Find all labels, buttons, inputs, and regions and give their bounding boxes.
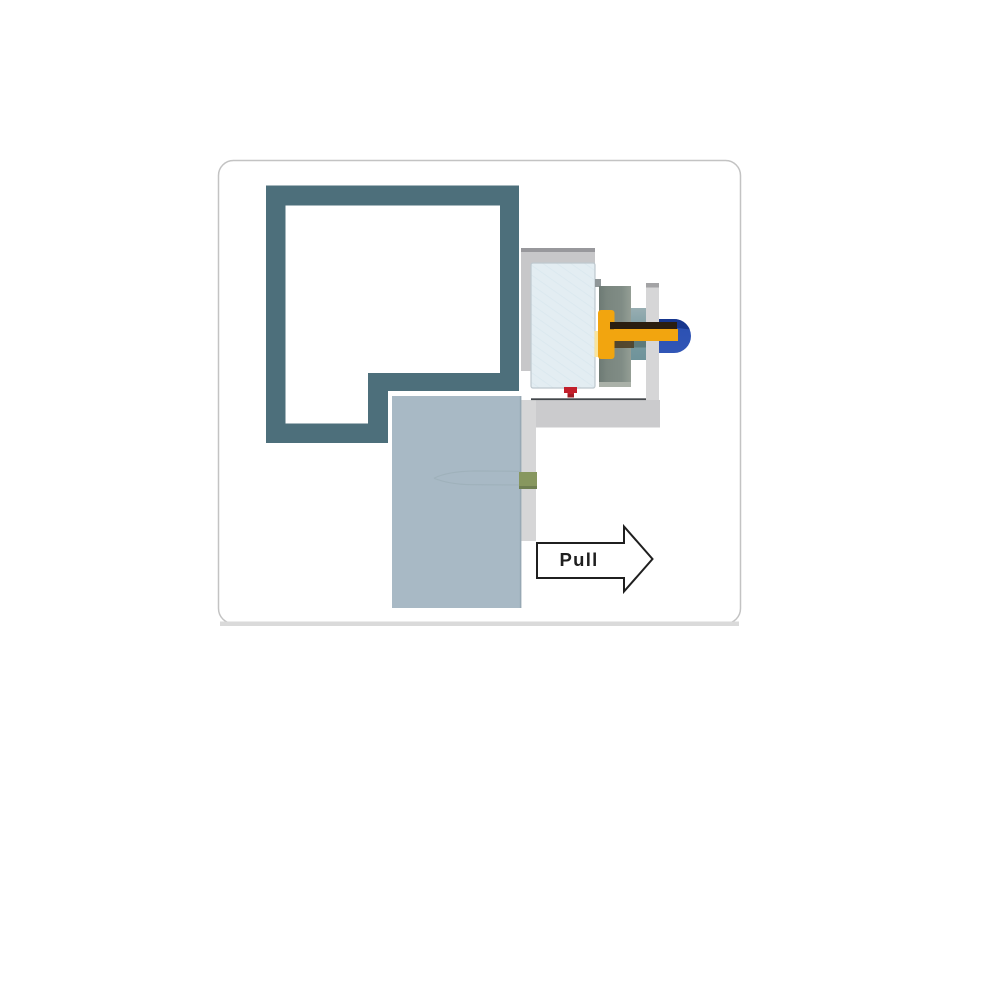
svg-text:Pull: Pull (560, 549, 599, 570)
